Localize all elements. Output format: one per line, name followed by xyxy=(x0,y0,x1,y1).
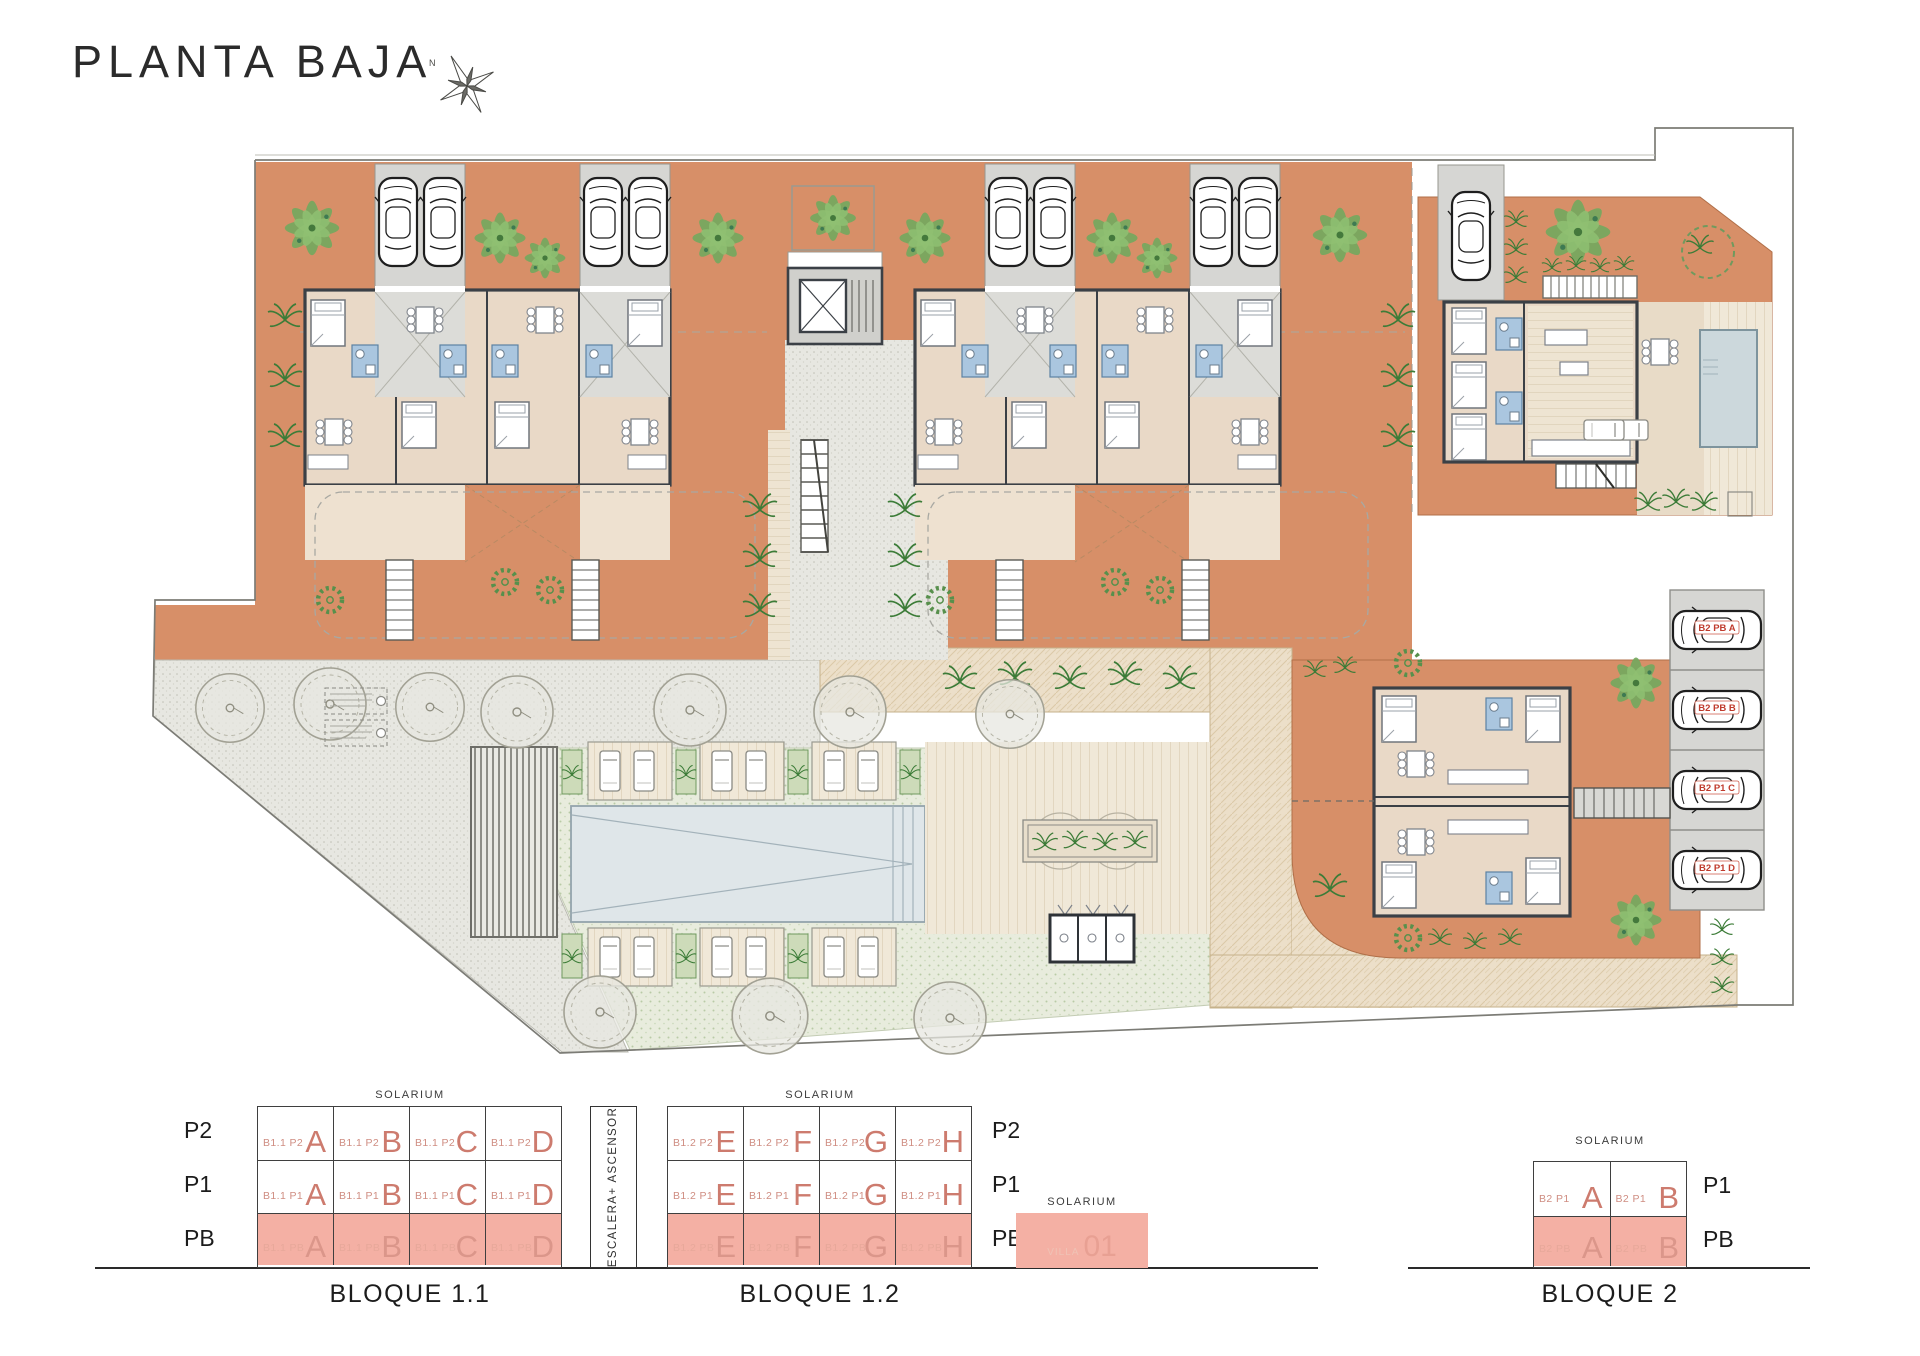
villa-number: 01 xyxy=(1083,1232,1116,1262)
b11-row-pb: B1.1 PBA B1.1 PBB B1.1 PBC B1.1 PBD xyxy=(258,1213,561,1265)
unit-b11-pb-b: B1.1 PBB xyxy=(333,1214,409,1265)
solarium-label-b12: SOLARIUM xyxy=(740,1089,900,1101)
unit-b2-p1-b: B2 P1B xyxy=(1610,1162,1687,1216)
unit-b12-p2-f: B1.2 P2F xyxy=(743,1107,819,1160)
deck-planter xyxy=(1023,813,1157,869)
unit-b12-p2-g: B1.2 P2G xyxy=(819,1107,895,1160)
unit-b11-pb-d: B1.1 PBD xyxy=(485,1214,561,1265)
floor-label-b2-p1: P1 xyxy=(1703,1172,1731,1199)
unit-b12-p2-h: B1.2 P2H xyxy=(895,1107,971,1160)
b12-row-p2: B1.2 P2E B1.2 P2F B1.2 P2G B1.2 P2H xyxy=(668,1107,971,1160)
unit-b11-p2-d: B1.1 P2D xyxy=(485,1107,561,1160)
bloque-1-2-grid: B1.2 P2E B1.2 P2F B1.2 P2G B1.2 P2H B1.2… xyxy=(667,1106,972,1268)
solarium-label-villa: SOLARIUM xyxy=(1002,1196,1162,1208)
bloque-2-title: BLOQUE 2 xyxy=(1480,1280,1740,1309)
unit-b12-pb-e: B1.2 PBE xyxy=(668,1214,743,1265)
unit-b12-p1-g: B1.2 P1G xyxy=(819,1161,895,1213)
unit-b11-p1-b: B1.1 P1B xyxy=(333,1161,409,1213)
unit-b11-p2-a: B1.1 P2A xyxy=(258,1107,333,1160)
unit-b2-p1-a: B2 P1A xyxy=(1534,1162,1610,1216)
b11-row-p1: B1.1 P1A B1.1 P1B B1.1 P1C B1.1 P1D xyxy=(258,1160,561,1213)
unit-b11-pb-c: B1.1 PBC xyxy=(409,1214,485,1265)
villa-01-box: VILLA 01 xyxy=(1016,1213,1148,1268)
parking-label-4: B2 P1 D xyxy=(1699,863,1735,874)
site-plan: B2 PB A B2 PB B B2 P1 C B2 P1 D xyxy=(0,0,1920,1075)
pergola xyxy=(471,747,557,937)
b12-row-p1: B1.2 P1E B1.2 P1F B1.2 P1G B1.2 P1H xyxy=(668,1160,971,1213)
floor-label-b11-pb: PB xyxy=(184,1225,215,1252)
parking-label-3: B2 P1 C xyxy=(1699,783,1735,794)
stair-core-label: ESCALERA+ ASCENSOR xyxy=(608,1107,620,1267)
floor-label-b12-p1: P1 xyxy=(992,1171,1020,1198)
villa-code: VILLA xyxy=(1047,1247,1079,1258)
unit-b2-pb-b: B2 PBB xyxy=(1610,1217,1687,1266)
b12-row-pb: B1.2 PBE B1.2 PBF B1.2 PBG B1.2 PBH xyxy=(668,1213,971,1265)
b2-row-pb: B2 PBA B2 PBB xyxy=(1534,1216,1686,1266)
unit-b11-p1-c: B1.1 P1C xyxy=(409,1161,485,1213)
solarium-label-b11: SOLARIUM xyxy=(330,1089,490,1101)
floor-label-b12-p2: P2 xyxy=(992,1117,1020,1144)
floor-plan-sheet: PLANTA BAJA N xyxy=(0,0,1920,1356)
unit-b12-pb-h: B1.2 PBH xyxy=(895,1214,971,1265)
unit-b11-p2-b: B1.1 P2B xyxy=(333,1107,409,1160)
solarium-label-b2: SOLARIUM xyxy=(1530,1135,1690,1147)
unit-b2-pb-a: B2 PBA xyxy=(1534,1217,1610,1266)
corridor-deck xyxy=(768,430,790,660)
building-bloque-1-2 xyxy=(915,286,1280,485)
unit-b12-p1-h: B1.2 P1H xyxy=(895,1161,971,1213)
stair-core-box: ESCALERA+ ASCENSOR xyxy=(590,1106,637,1268)
bloque-1-1-grid: B1.1 P2A B1.1 P2B B1.1 P2C B1.1 P2D B1.1… xyxy=(257,1106,562,1268)
unit-b11-p1-a: B1.1 P1A xyxy=(258,1161,333,1213)
villa-pool xyxy=(1700,330,1757,447)
floor-label-b11-p1: P1 xyxy=(184,1171,212,1198)
unit-b11-p1-d: B1.1 P1D xyxy=(485,1161,561,1213)
unit-b12-pb-f: B1.2 PBF xyxy=(743,1214,819,1265)
unit-b11-pb-a: B1.1 PBA xyxy=(258,1214,333,1265)
bloque-2-grid: B2 P1A B2 P1B B2 PBA B2 PBB xyxy=(1533,1161,1687,1268)
bloque-1-1-title: BLOQUE 1.1 xyxy=(280,1280,540,1309)
bloque-1-2-title: BLOQUE 1.2 xyxy=(690,1280,950,1309)
floor-label-b2-pb: PB xyxy=(1703,1226,1734,1253)
unit-b12-pb-g: B1.2 PBG xyxy=(819,1214,895,1265)
b11-row-p2: B1.1 P2A B1.1 P2B B1.1 P2C B1.1 P2D xyxy=(258,1107,561,1160)
b2-row-p1: B2 P1A B2 P1B xyxy=(1534,1162,1686,1216)
unit-b12-p1-f: B1.2 P1F xyxy=(743,1161,819,1213)
unit-b12-p2-e: B1.2 P2E xyxy=(668,1107,743,1160)
pool xyxy=(571,806,925,922)
floor-label-b11-p2: P2 xyxy=(184,1117,212,1144)
parking-label-1: B2 PB A xyxy=(1698,623,1735,634)
unit-b11-p2-c: B1.1 P2C xyxy=(409,1107,485,1160)
building-bloque-1-1 xyxy=(305,286,670,485)
parking-label-2: B2 PB B xyxy=(1698,703,1736,714)
pool-wc-block xyxy=(1050,905,1134,962)
unit-b12-p1-e: B1.2 P1E xyxy=(668,1161,743,1213)
